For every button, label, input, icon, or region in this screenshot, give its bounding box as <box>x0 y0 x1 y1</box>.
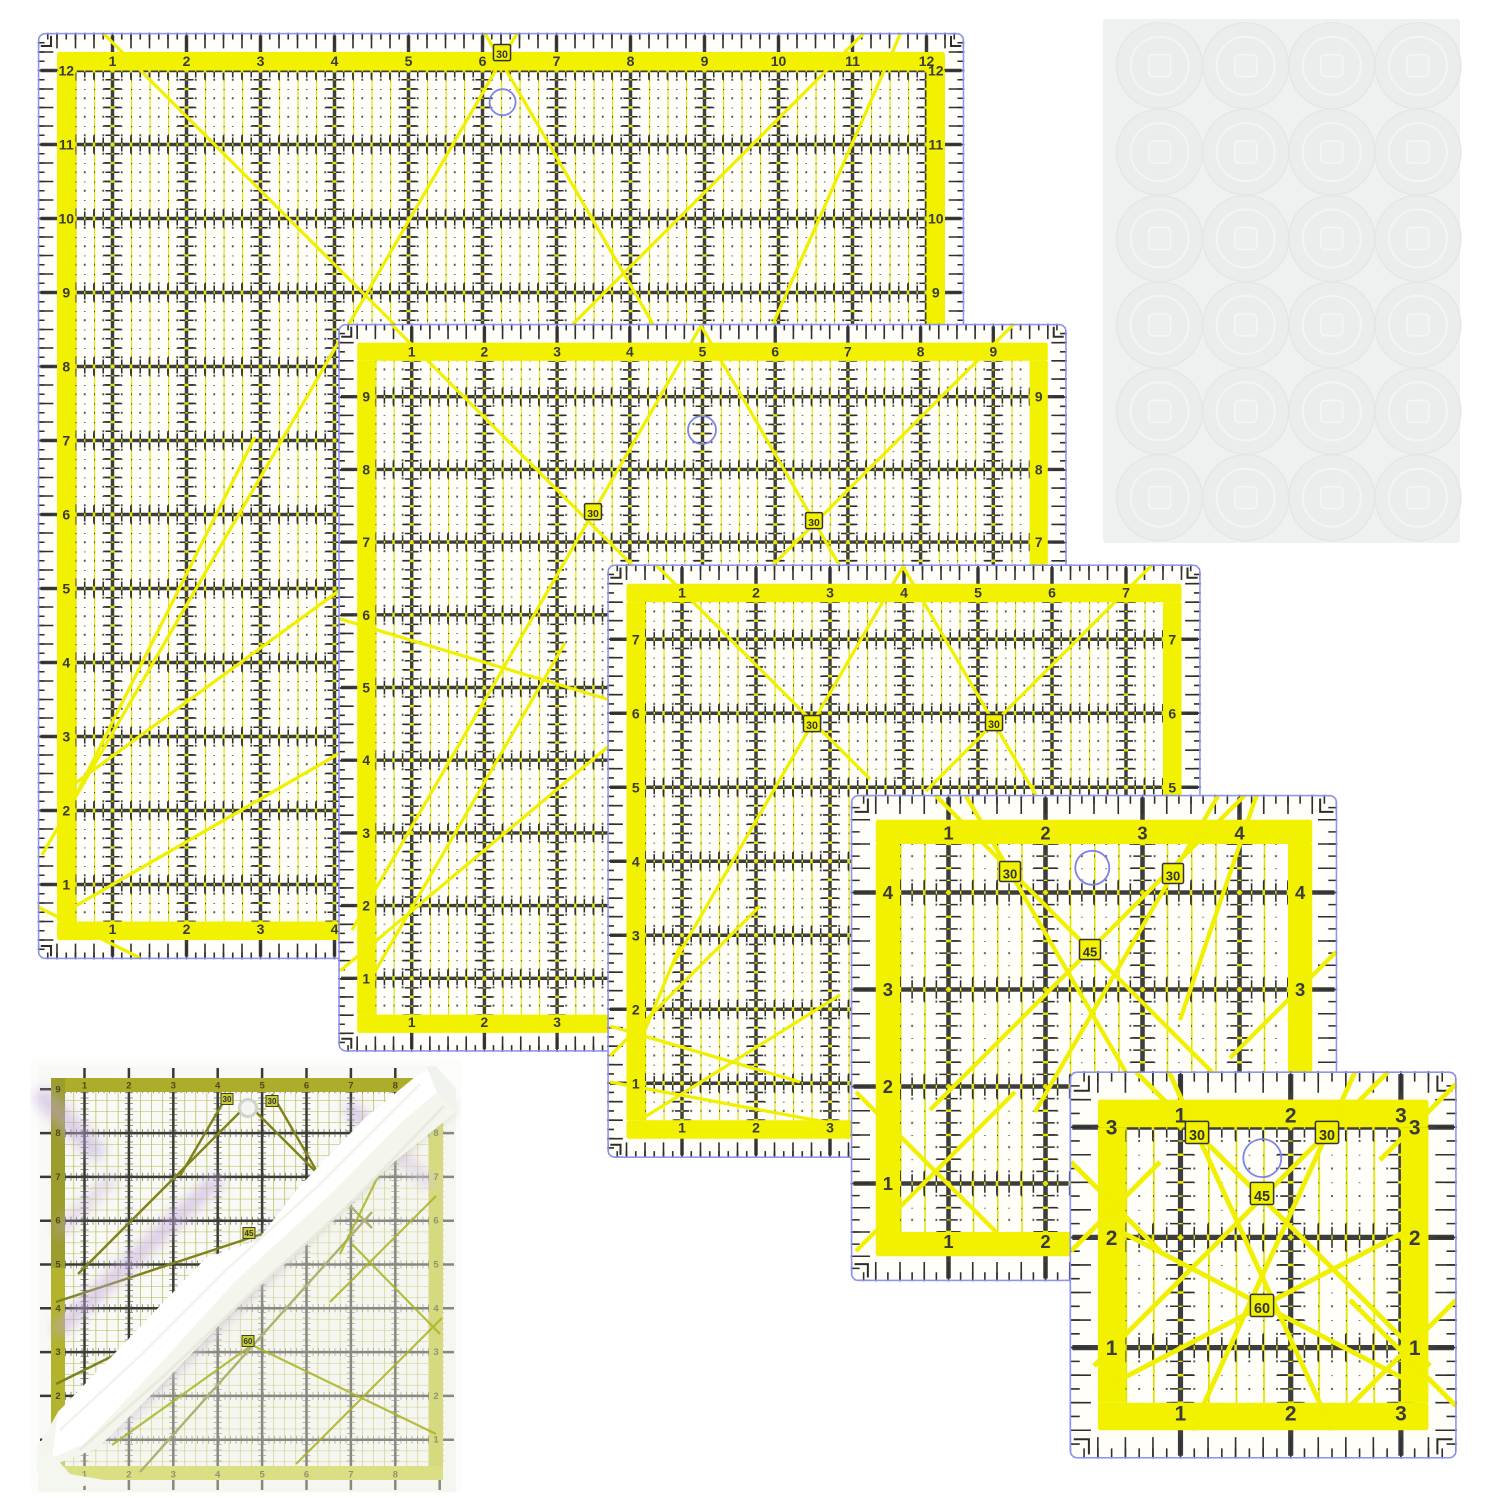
svg-text:9: 9 <box>62 285 70 301</box>
svg-text:4: 4 <box>1295 882 1306 903</box>
svg-text:8: 8 <box>1035 461 1043 477</box>
svg-text:6: 6 <box>632 705 640 721</box>
svg-text:3: 3 <box>55 1347 60 1358</box>
svg-text:1: 1 <box>632 1075 640 1091</box>
svg-text:3: 3 <box>1295 979 1305 1000</box>
svg-text:4: 4 <box>362 752 370 768</box>
svg-text:4: 4 <box>331 53 339 69</box>
svg-text:1: 1 <box>943 1231 953 1252</box>
svg-text:9: 9 <box>989 343 997 359</box>
svg-text:2: 2 <box>183 53 191 69</box>
svg-text:5: 5 <box>55 1260 61 1271</box>
svg-text:3: 3 <box>553 1014 561 1030</box>
svg-text:8: 8 <box>393 1081 398 1092</box>
svg-text:10: 10 <box>928 211 944 227</box>
svg-text:2: 2 <box>1285 1403 1297 1426</box>
svg-text:45: 45 <box>245 1229 254 1238</box>
svg-text:4: 4 <box>62 655 70 671</box>
svg-text:1: 1 <box>678 585 686 601</box>
svg-text:2: 2 <box>183 921 191 937</box>
svg-text:3: 3 <box>632 927 640 943</box>
svg-text:6: 6 <box>1168 705 1176 721</box>
svg-text:3: 3 <box>257 53 265 69</box>
svg-text:1: 1 <box>883 1173 893 1194</box>
svg-text:1: 1 <box>943 823 953 844</box>
svg-text:9: 9 <box>1035 389 1043 405</box>
svg-text:3: 3 <box>62 729 70 745</box>
svg-text:4: 4 <box>632 853 640 869</box>
svg-text:45: 45 <box>1254 1189 1270 1205</box>
svg-text:7: 7 <box>362 534 370 550</box>
svg-text:2: 2 <box>362 898 370 914</box>
svg-text:6: 6 <box>362 607 370 623</box>
svg-text:5: 5 <box>362 679 370 695</box>
svg-text:8: 8 <box>917 343 925 359</box>
svg-text:5: 5 <box>62 581 70 597</box>
svg-text:2: 2 <box>55 1391 60 1402</box>
svg-text:1: 1 <box>62 877 70 893</box>
svg-text:2: 2 <box>1040 823 1050 844</box>
svg-text:60: 60 <box>244 1337 253 1346</box>
svg-text:4: 4 <box>900 585 908 601</box>
svg-text:4: 4 <box>55 1303 61 1314</box>
svg-text:4: 4 <box>215 1081 221 1092</box>
svg-text:1: 1 <box>109 921 117 937</box>
svg-text:7: 7 <box>553 53 561 69</box>
svg-text:2: 2 <box>481 343 489 359</box>
svg-text:1: 1 <box>1409 1337 1421 1360</box>
svg-text:5: 5 <box>405 53 413 69</box>
svg-text:9: 9 <box>932 285 940 301</box>
svg-text:3: 3 <box>883 979 893 1000</box>
svg-text:1: 1 <box>1106 1337 1118 1360</box>
svg-text:3: 3 <box>257 921 265 937</box>
svg-text:1: 1 <box>1175 1403 1187 1426</box>
svg-text:5: 5 <box>1168 779 1176 795</box>
svg-text:2: 2 <box>126 1081 131 1092</box>
svg-text:3: 3 <box>1395 1403 1407 1426</box>
svg-text:1: 1 <box>408 343 416 359</box>
svg-text:45: 45 <box>1083 944 1097 959</box>
svg-text:6: 6 <box>304 1081 309 1092</box>
svg-text:11: 11 <box>59 137 74 153</box>
svg-text:7: 7 <box>632 631 640 647</box>
svg-text:4: 4 <box>1234 823 1245 844</box>
svg-text:30: 30 <box>268 1097 277 1106</box>
svg-text:9: 9 <box>55 1084 60 1095</box>
svg-text:2: 2 <box>1040 1231 1050 1252</box>
svg-text:9: 9 <box>701 53 709 69</box>
svg-text:6: 6 <box>479 53 487 69</box>
svg-text:30: 30 <box>496 49 508 61</box>
svg-text:7: 7 <box>1168 631 1176 647</box>
svg-text:3: 3 <box>1395 1105 1407 1128</box>
svg-text:4: 4 <box>626 343 634 359</box>
svg-text:4: 4 <box>883 882 894 903</box>
svg-text:11: 11 <box>928 137 943 153</box>
svg-text:30: 30 <box>1319 1128 1335 1144</box>
svg-text:30: 30 <box>1003 866 1017 881</box>
svg-text:1: 1 <box>82 1081 88 1092</box>
svg-text:12: 12 <box>58 63 74 79</box>
svg-text:3: 3 <box>1106 1117 1118 1140</box>
svg-text:2: 2 <box>62 803 70 819</box>
svg-text:6: 6 <box>62 507 70 523</box>
svg-text:2: 2 <box>1409 1227 1421 1250</box>
svg-text:30: 30 <box>808 518 820 529</box>
svg-text:30: 30 <box>806 720 818 732</box>
svg-text:7: 7 <box>348 1081 353 1092</box>
svg-text:8: 8 <box>62 359 70 375</box>
svg-text:30: 30 <box>1189 1128 1205 1144</box>
svg-text:60: 60 <box>1254 1301 1270 1317</box>
svg-text:7: 7 <box>62 433 70 449</box>
svg-text:7: 7 <box>55 1172 60 1183</box>
svg-text:6: 6 <box>55 1216 60 1227</box>
svg-text:5: 5 <box>632 779 640 795</box>
svg-text:1: 1 <box>109 53 117 69</box>
svg-text:2: 2 <box>1106 1227 1118 1250</box>
svg-text:3: 3 <box>1409 1117 1421 1140</box>
svg-text:30: 30 <box>223 1095 232 1104</box>
svg-text:5: 5 <box>974 585 982 601</box>
svg-text:3: 3 <box>553 343 561 359</box>
svg-text:3: 3 <box>1137 823 1147 844</box>
svg-text:2: 2 <box>752 1120 760 1136</box>
svg-text:2: 2 <box>1285 1105 1297 1128</box>
svg-text:8: 8 <box>55 1128 60 1139</box>
svg-text:2: 2 <box>632 1001 640 1017</box>
svg-text:4: 4 <box>331 921 339 937</box>
svg-text:5: 5 <box>699 343 707 359</box>
svg-text:3: 3 <box>826 1120 834 1136</box>
svg-text:2: 2 <box>481 1014 489 1030</box>
svg-text:2: 2 <box>752 585 760 601</box>
svg-text:10: 10 <box>771 53 787 69</box>
svg-text:1: 1 <box>408 1014 416 1030</box>
svg-text:3: 3 <box>362 825 370 841</box>
svg-text:3: 3 <box>171 1081 176 1092</box>
svg-text:1: 1 <box>362 970 370 986</box>
svg-text:12: 12 <box>928 63 944 79</box>
svg-text:9: 9 <box>362 389 370 405</box>
svg-text:6: 6 <box>771 343 779 359</box>
svg-text:7: 7 <box>1035 534 1043 550</box>
svg-text:7: 7 <box>1122 585 1130 601</box>
svg-text:7: 7 <box>844 343 852 359</box>
svg-text:30: 30 <box>1166 868 1180 883</box>
svg-text:2: 2 <box>883 1076 893 1097</box>
svg-text:6: 6 <box>1048 585 1056 601</box>
svg-text:1: 1 <box>678 1120 686 1136</box>
svg-text:3: 3 <box>826 585 834 601</box>
svg-text:10: 10 <box>58 211 74 227</box>
svg-text:5: 5 <box>259 1081 265 1092</box>
svg-text:11: 11 <box>845 53 860 69</box>
svg-text:8: 8 <box>362 461 370 477</box>
svg-text:8: 8 <box>627 53 635 69</box>
svg-text:30: 30 <box>587 509 599 520</box>
svg-text:30: 30 <box>988 719 1000 731</box>
